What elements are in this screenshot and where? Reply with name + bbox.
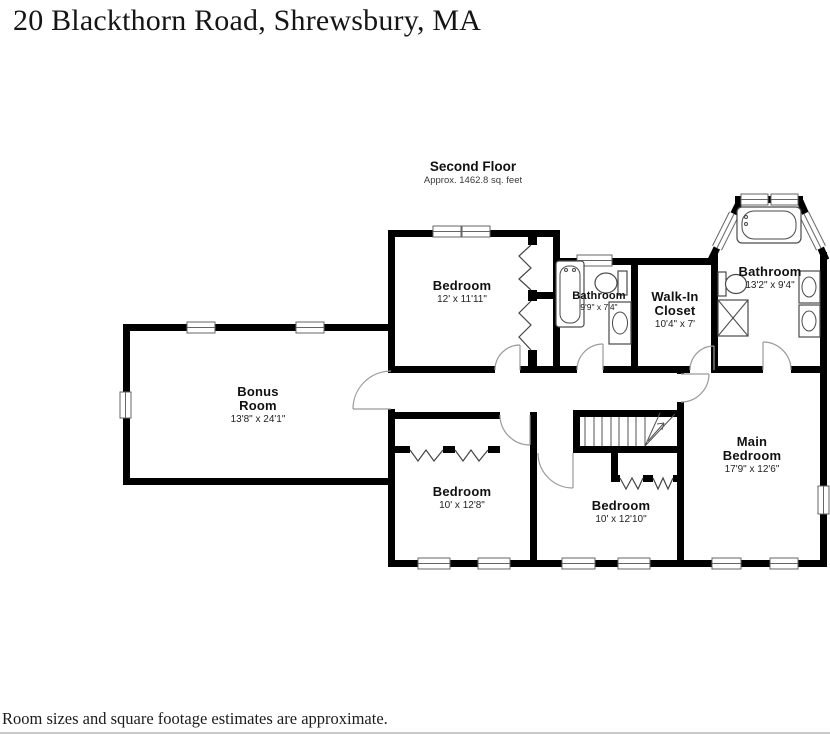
room-name: Closet bbox=[651, 304, 698, 318]
room-label-bedroom-top: Bedroom 12' x 11'11" bbox=[433, 279, 491, 305]
windows bbox=[120, 194, 829, 569]
window bbox=[804, 214, 821, 248]
footer-note: Room sizes and square footage estimates … bbox=[2, 709, 388, 729]
window bbox=[418, 558, 450, 569]
window bbox=[120, 392, 131, 418]
room-label-walk-in-closet: Walk-In Closet 10'4" x 7' bbox=[651, 290, 698, 330]
room-dims: 17'9" x 12'6" bbox=[723, 464, 781, 475]
floor-plan bbox=[0, 0, 830, 735]
window bbox=[770, 558, 798, 569]
room-dims: 13'2" x 9'4" bbox=[739, 280, 802, 291]
room-label-bathroom-main: Bathroom 13'2" x 9'4" bbox=[739, 265, 802, 291]
room-dims: 10'4" x 7' bbox=[651, 319, 698, 330]
window bbox=[712, 558, 741, 569]
room-label-bonus-room: Bonus Room 13'8" x 24'1" bbox=[231, 385, 286, 425]
bifold-door bbox=[519, 301, 531, 350]
bifold-door bbox=[519, 245, 531, 290]
bottom-divider bbox=[0, 732, 830, 734]
door-swing bbox=[690, 346, 714, 370]
bifold-door bbox=[620, 478, 643, 489]
door-swing bbox=[577, 344, 603, 370]
room-name: Bedroom bbox=[592, 499, 650, 513]
room-name: Bedroom bbox=[723, 449, 781, 463]
window bbox=[741, 194, 768, 205]
sink-icon bbox=[799, 271, 820, 303]
shower-icon bbox=[718, 300, 748, 336]
room-name: Bathroom bbox=[739, 265, 802, 279]
room-name: Bathroom bbox=[572, 290, 626, 302]
bathtub-icon bbox=[737, 207, 801, 243]
window bbox=[462, 226, 490, 237]
room-label-main-bedroom: Main Bedroom 17'9" x 12'6" bbox=[723, 435, 781, 475]
room-name: Walk-In bbox=[651, 290, 698, 304]
room-label-bedroom-bottom-left: Bedroom 10' x 12'8" bbox=[433, 485, 491, 511]
window bbox=[717, 214, 734, 248]
window bbox=[296, 322, 324, 333]
bifold-door bbox=[653, 478, 673, 489]
room-label-bedroom-bottom-right: Bedroom 10' x 12'10" bbox=[592, 499, 650, 525]
stairs bbox=[585, 413, 675, 446]
room-dims: 10' x 12'10" bbox=[592, 514, 650, 525]
room-dims: 9'9" x 7'4" bbox=[572, 303, 626, 312]
window bbox=[433, 226, 461, 237]
window bbox=[771, 194, 798, 205]
door-swing bbox=[500, 415, 530, 445]
room-name: Main bbox=[723, 435, 781, 449]
door-swing bbox=[681, 374, 709, 402]
room-name: Bonus bbox=[231, 385, 286, 399]
bifold-door bbox=[410, 450, 443, 461]
room-name: Bedroom bbox=[433, 279, 491, 293]
window bbox=[478, 558, 510, 569]
room-name: Room bbox=[231, 399, 286, 413]
window bbox=[618, 558, 650, 569]
window bbox=[562, 558, 595, 569]
room-dims: 10' x 12'8" bbox=[433, 500, 491, 511]
door-swing bbox=[763, 342, 791, 370]
room-dims: 13'8" x 24'1" bbox=[231, 414, 286, 425]
stair-direction-arrow bbox=[648, 423, 664, 441]
walls bbox=[123, 196, 827, 567]
room-name: Bedroom bbox=[433, 485, 491, 499]
door-swing bbox=[353, 371, 391, 409]
room-label-bathroom-center: Bathroom 9'9" x 7'4" bbox=[572, 290, 626, 312]
room-dims: 12' x 11'11" bbox=[433, 294, 491, 305]
door-swing bbox=[495, 345, 520, 370]
bifold-door bbox=[455, 450, 488, 461]
door-swing bbox=[538, 453, 573, 488]
window bbox=[187, 322, 215, 333]
window bbox=[818, 486, 829, 514]
sink-icon bbox=[799, 305, 820, 337]
